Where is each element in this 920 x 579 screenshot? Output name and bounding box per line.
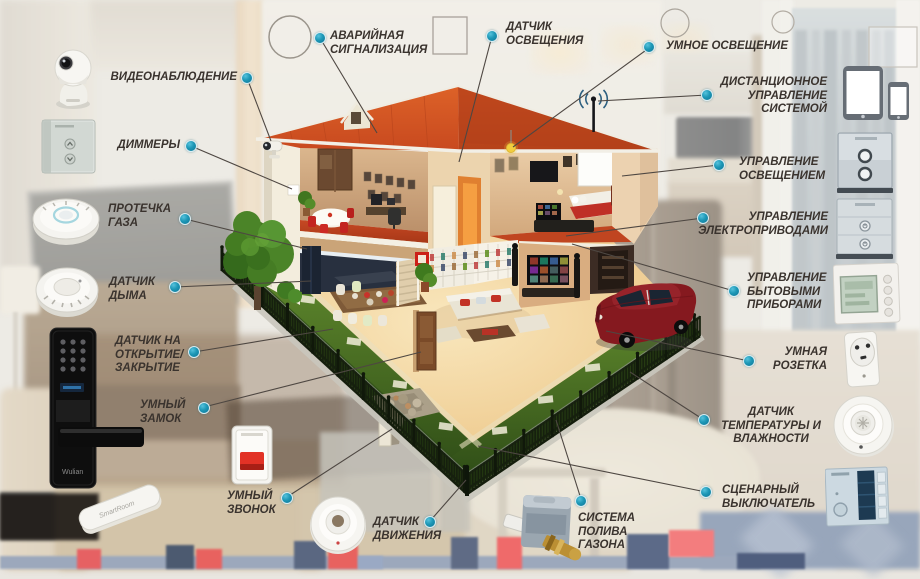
svg-text:Wulian: Wulian [62, 469, 83, 476]
